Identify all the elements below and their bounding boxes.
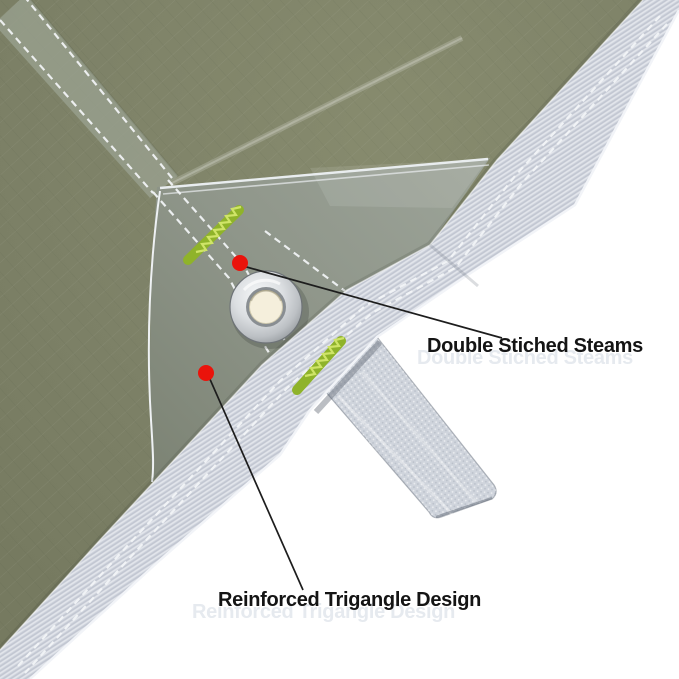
label-double-stitched-seams: Double Stiched Steams [427,335,643,358]
product-photo: Double Stiched Steams Double Stiched Ste… [0,0,679,679]
marker-dot-triangle [198,365,214,381]
marker-dot-seams [232,255,248,271]
label-reinforced-triangle: Reinforced Trigangle Design [218,589,481,612]
